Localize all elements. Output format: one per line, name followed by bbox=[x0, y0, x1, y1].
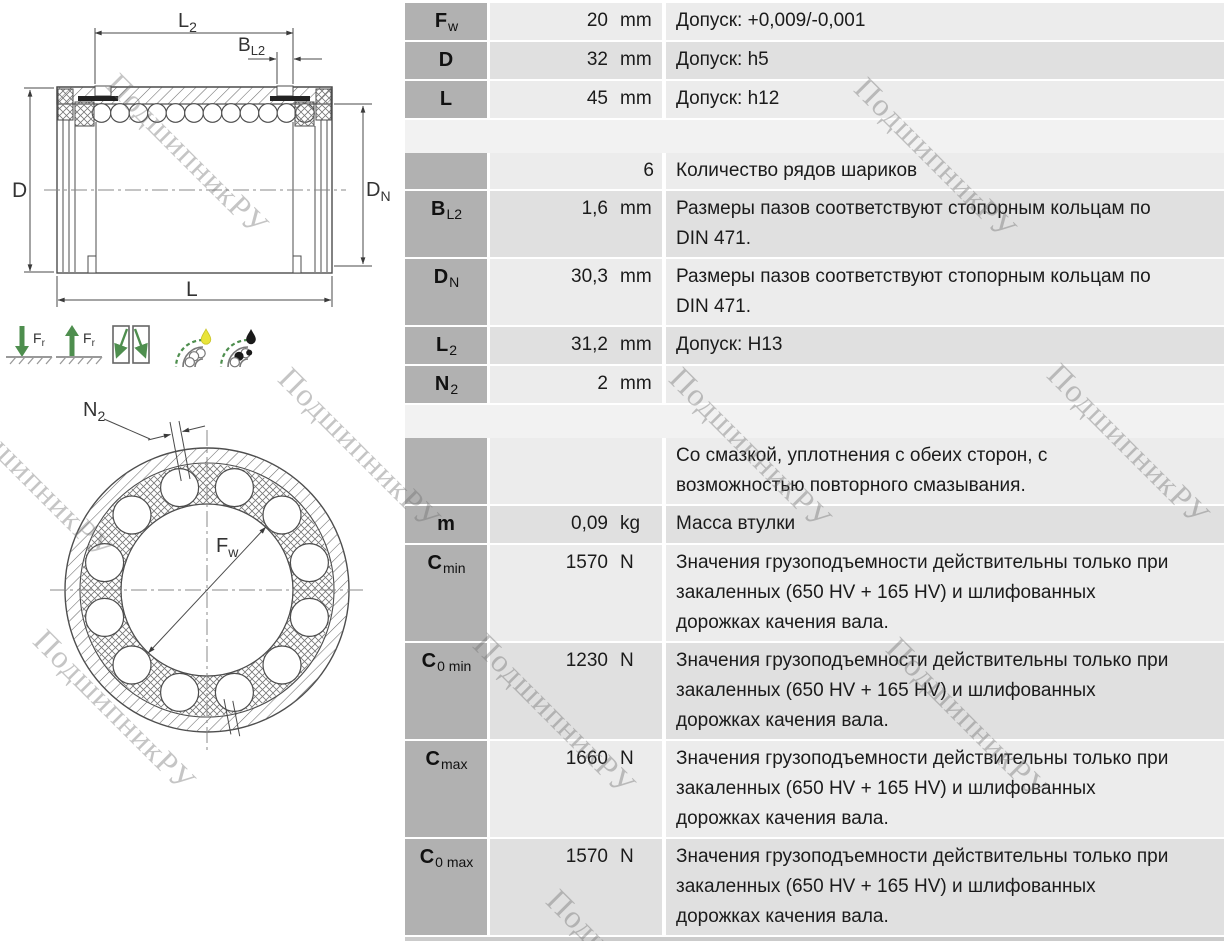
symbol-base: F bbox=[435, 10, 447, 32]
parameter-symbol: BL2 bbox=[405, 191, 487, 257]
parameter-symbol: Fw bbox=[405, 3, 487, 40]
symbol-subscript: 2 bbox=[450, 381, 458, 397]
symbol-subscript: L2 bbox=[446, 206, 462, 222]
symbol-subscript: 2 bbox=[449, 342, 457, 358]
grease-lubrication-icon bbox=[176, 329, 211, 367]
symbol-base: C bbox=[426, 748, 440, 770]
parameter-symbol: m bbox=[405, 506, 487, 543]
parameter-symbol: L bbox=[405, 81, 487, 118]
parameter-description: Размеры пазов соответствуют стопорным ко… bbox=[666, 191, 1224, 257]
parameter-value: 45mm bbox=[490, 81, 662, 118]
dim-label-bl2: BL2 bbox=[238, 35, 265, 58]
fr-label: Fr bbox=[83, 330, 96, 349]
parameter-description: Значения грузоподъемности действительны … bbox=[666, 839, 1224, 935]
parameter-description: Допуск: H13 bbox=[666, 327, 1224, 364]
symbol-base: m bbox=[437, 513, 455, 535]
symbol-subscript: w bbox=[448, 18, 458, 34]
symbol-base: B bbox=[431, 198, 445, 220]
parameter-symbol bbox=[405, 153, 487, 189]
spec-table: Fw 20mm Допуск: +0,009/-0,001 D 32mm Доп… bbox=[405, 0, 1224, 941]
parameter-description: Допуск: +0,009/-0,001 bbox=[666, 3, 1224, 40]
value-unit: N bbox=[620, 744, 654, 834]
grease-drop bbox=[201, 329, 211, 344]
symbol-subscript: max bbox=[441, 756, 467, 772]
parameter-description: Количество рядов шариков bbox=[666, 153, 1224, 189]
parameter-symbol: C0 max bbox=[405, 839, 487, 935]
value-number: 0,09 bbox=[490, 509, 608, 540]
parameter-value: 30,3mm bbox=[490, 259, 662, 325]
radial-load-down-icon: Fr bbox=[6, 326, 52, 364]
parameter-value: 32mm bbox=[490, 42, 662, 79]
value-unit: mm bbox=[620, 84, 654, 115]
parameter-description: Со смазкой, уплотнения с обеих сторон, с… bbox=[666, 438, 1224, 504]
technical-drawings: L2 BL2 D DN L Fr Fr bbox=[0, 0, 405, 941]
symbol-base: D bbox=[439, 49, 453, 71]
dim-label-d: D bbox=[12, 179, 27, 202]
table-row: C0 min 1230N Значения грузоподъемности д… bbox=[405, 643, 1224, 741]
symbol-base: C bbox=[422, 650, 436, 672]
parameter-symbol: Cmin bbox=[405, 545, 487, 641]
table-row: BL2 1,6mm Размеры пазов соответствуют ст… bbox=[405, 191, 1224, 259]
value-number bbox=[490, 441, 654, 501]
oil-lubrication-icon bbox=[221, 329, 256, 367]
parameter-value: 1,6mm bbox=[490, 191, 662, 257]
group-gap bbox=[405, 120, 1224, 153]
oil-drop bbox=[246, 329, 256, 344]
table-row: L2 31,2mm Допуск: H13 bbox=[405, 327, 1224, 366]
table-row: Fw 20mm Допуск: +0,009/-0,001 bbox=[405, 3, 1224, 42]
value-number: 30,3 bbox=[490, 262, 608, 322]
radial-load-up-icon: Fr bbox=[56, 325, 102, 364]
table-row: L 45mm Допуск: h12 bbox=[405, 81, 1224, 120]
table-row: 6 Количество рядов шариков bbox=[405, 153, 1224, 191]
parameter-value: 1570N bbox=[490, 839, 662, 935]
parameter-value: 1660N bbox=[490, 741, 662, 837]
parameter-symbol bbox=[405, 438, 487, 504]
parameter-value: 20mm bbox=[490, 3, 662, 40]
value-unit: N bbox=[620, 646, 654, 736]
value-unit: mm bbox=[620, 330, 654, 361]
table-row: Со смазкой, уплотнения с обеих сторон, с… bbox=[405, 438, 1224, 506]
parameter-value: 0,09kg bbox=[490, 506, 662, 543]
dim-label-n2: N2 bbox=[83, 399, 105, 424]
parameter-symbol: C0 min bbox=[405, 643, 487, 739]
table-row: m 0,09kg Масса втулки bbox=[405, 506, 1224, 545]
symbol-subscript: N bbox=[449, 274, 459, 290]
parameter-description: Значения грузоподъемности действительны … bbox=[666, 643, 1224, 739]
value-unit: mm bbox=[620, 194, 654, 254]
symbol-subscript: min bbox=[443, 560, 466, 576]
value-number: 45 bbox=[490, 84, 608, 115]
symbol-base: L bbox=[436, 334, 448, 356]
symbol-base: D bbox=[434, 266, 448, 288]
parameter-description: Допуск: h5 bbox=[666, 42, 1224, 79]
parameter-symbol: N2 bbox=[405, 366, 487, 403]
parameter-description: Размеры пазов соответствуют стопорным ко… bbox=[666, 259, 1224, 325]
parameter-value: 2mm bbox=[490, 366, 662, 403]
symbol-base: C bbox=[427, 552, 441, 574]
value-number: 1230 bbox=[490, 646, 608, 736]
parameter-symbol: DN bbox=[405, 259, 487, 325]
value-unit: mm bbox=[620, 369, 654, 400]
value-number: 20 bbox=[490, 6, 608, 37]
parameter-description: Масса втулки bbox=[666, 506, 1224, 543]
value-unit: N bbox=[620, 842, 654, 932]
table-row: N2 2mm bbox=[405, 366, 1224, 405]
parameter-description bbox=[666, 366, 1224, 403]
symbol-subscript: 0 min bbox=[437, 658, 471, 674]
table-row: DN 30,3mm Размеры пазов соответствуют ст… bbox=[405, 259, 1224, 327]
parameter-symbol: Cmax bbox=[405, 741, 487, 837]
value-number: 32 bbox=[490, 45, 608, 76]
parameter-description: Значения грузоподъемности действительны … bbox=[666, 741, 1224, 837]
value-number: 1660 bbox=[490, 744, 608, 834]
table-row: Cmax 1660N Значения грузоподъемности дей… bbox=[405, 741, 1224, 839]
parameter-value: 1230N bbox=[490, 643, 662, 739]
table-row: D 32mm Допуск: h5 bbox=[405, 42, 1224, 81]
section-view-drawing: L2 BL2 D DN L bbox=[12, 10, 391, 307]
table-row: C0 max 1570N Значения грузоподъемности д… bbox=[405, 839, 1224, 937]
fr-label: Fr bbox=[33, 330, 46, 349]
value-number: 1,6 bbox=[490, 194, 608, 254]
value-unit: mm bbox=[620, 45, 654, 76]
parameter-symbol: L2 bbox=[405, 327, 487, 364]
value-unit: mm bbox=[620, 262, 654, 322]
parameter-value: 31,2mm bbox=[490, 327, 662, 364]
next-row-edge bbox=[405, 937, 1224, 941]
parameter-description: Значения грузоподъемности действительны … bbox=[666, 545, 1224, 641]
value-unit: kg bbox=[620, 509, 654, 540]
value-unit: N bbox=[620, 548, 654, 638]
table-row: Cmin 1570N Значения грузоподъемности дей… bbox=[405, 545, 1224, 643]
drawing-panel: L2 BL2 D DN L Fr Fr bbox=[0, 0, 405, 941]
value-number: 2 bbox=[490, 369, 608, 400]
dim-label-l: L bbox=[186, 278, 198, 301]
value-number: 6 bbox=[490, 156, 654, 186]
value-number: 1570 bbox=[490, 548, 608, 638]
value-number: 31,2 bbox=[490, 330, 608, 361]
feature-icons: Fr Fr bbox=[6, 325, 256, 367]
value-unit: mm bbox=[620, 6, 654, 37]
misalignment-icon bbox=[113, 326, 149, 363]
dim-label-l2: L2 bbox=[178, 10, 197, 35]
parameter-value: 6 bbox=[490, 153, 662, 189]
dim-label-dn: DN bbox=[366, 179, 391, 204]
symbol-base: C bbox=[420, 846, 434, 868]
parameter-value: 1570N bbox=[490, 545, 662, 641]
group-gap bbox=[405, 405, 1224, 438]
parameter-value bbox=[490, 438, 662, 504]
parameter-description: Допуск: h12 bbox=[666, 81, 1224, 118]
bearing-datasheet-page: L2 BL2 D DN L Fr Fr bbox=[0, 0, 1224, 941]
value-number: 1570 bbox=[490, 842, 608, 932]
symbol-subscript: 0 max bbox=[435, 854, 473, 870]
parameter-symbol: D bbox=[405, 42, 487, 79]
symbol-base: L bbox=[440, 88, 452, 110]
symbol-base: N bbox=[435, 373, 449, 395]
front-view-drawing: N2 Fw bbox=[50, 399, 365, 752]
